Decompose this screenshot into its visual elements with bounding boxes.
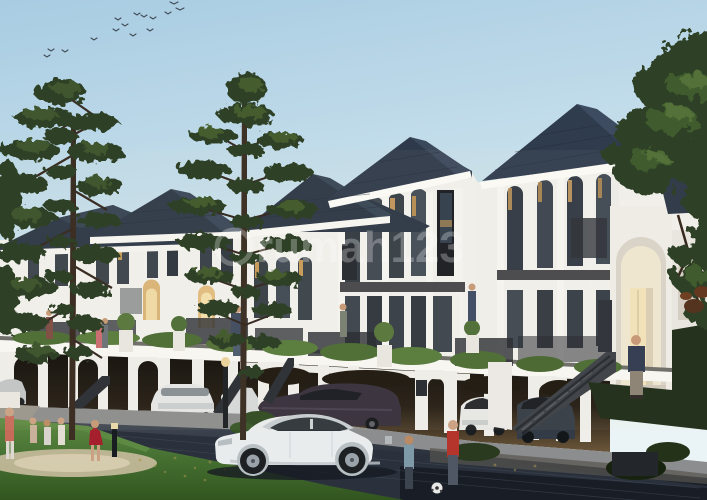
svg-text:rumah123: rumah123 (256, 223, 464, 272)
